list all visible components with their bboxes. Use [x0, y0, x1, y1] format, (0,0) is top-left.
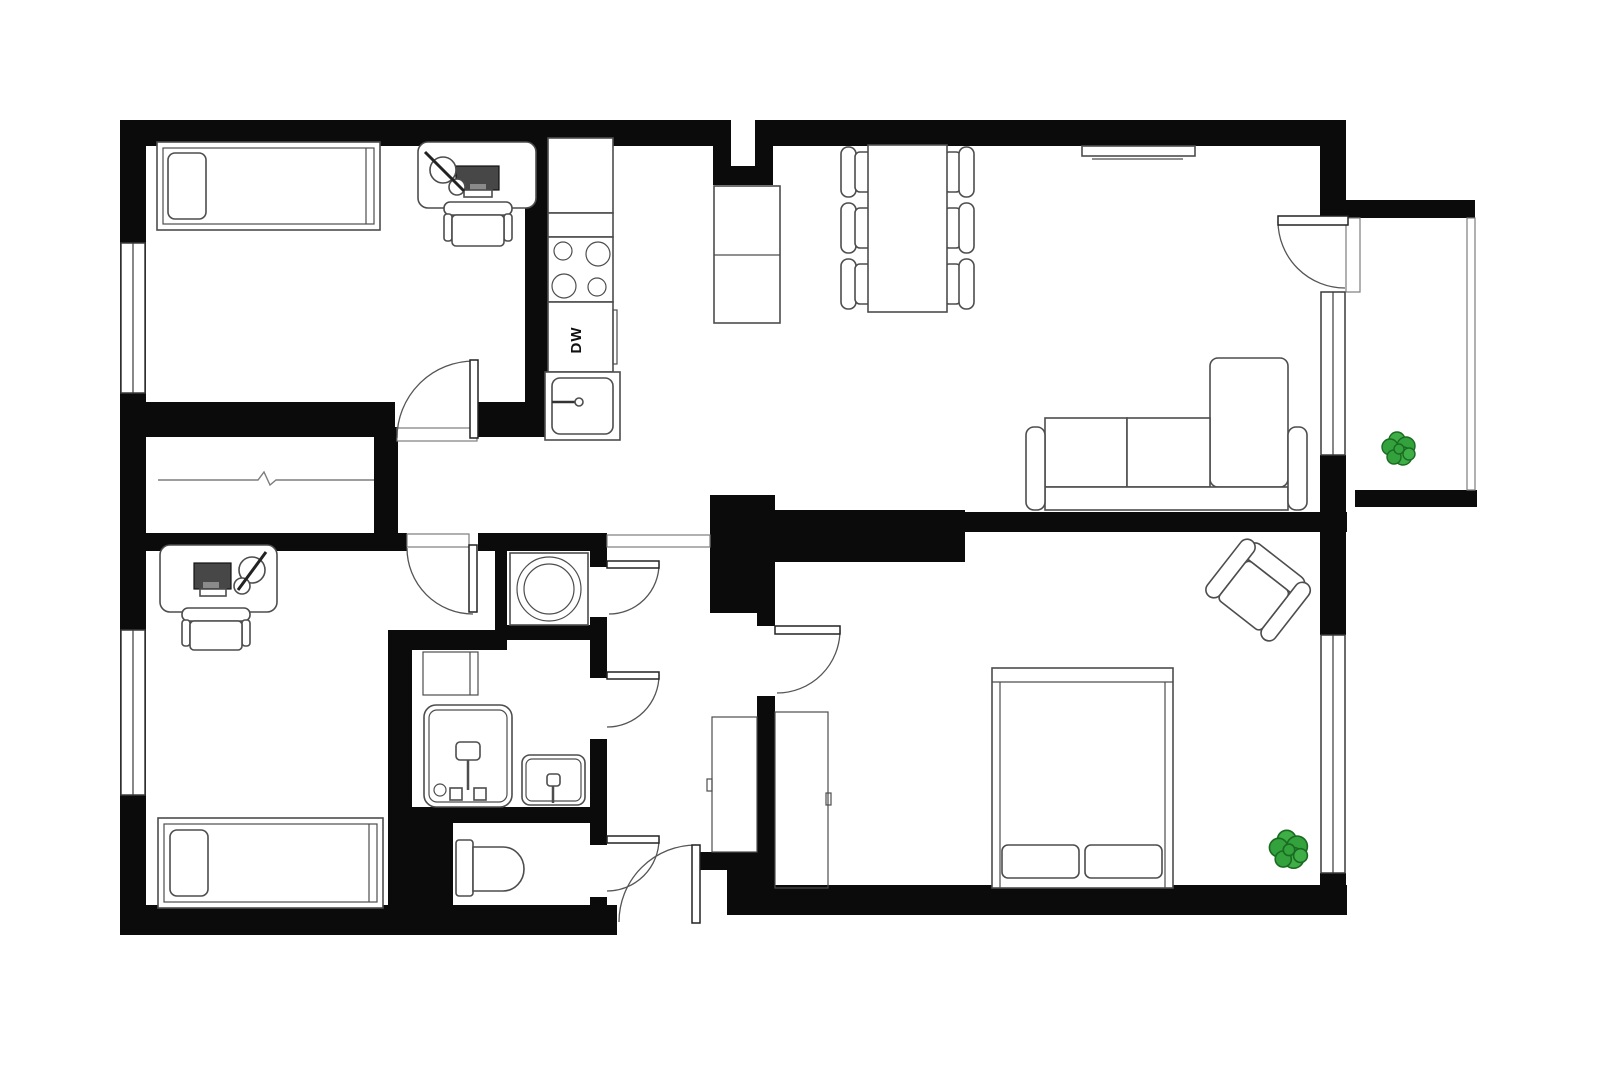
door-bedroom1: [397, 360, 478, 438]
wall-hall-pier: [374, 427, 398, 545]
door-laundry-closet: [607, 561, 659, 614]
single-bed-2: [158, 818, 383, 908]
wall-livingroom-east-upper: [1320, 120, 1346, 218]
threshold-bedroom1-door: [397, 428, 477, 441]
chair-right-2: [944, 203, 974, 253]
wall-livingroom-south: [965, 512, 1347, 532]
wall-wc-west: [412, 818, 453, 933]
tv: [1082, 146, 1195, 159]
wall-central-block: [710, 495, 775, 613]
shower-head: [456, 742, 480, 760]
window-livingroom: [1321, 292, 1345, 455]
sofa-back: [1045, 487, 1288, 510]
toilet-bowl: [473, 847, 524, 891]
closet-handle: [707, 779, 712, 791]
pillow: [170, 830, 208, 896]
pillow-left: [1002, 845, 1079, 878]
walls: [120, 120, 1477, 935]
door-bedroom2: [407, 545, 477, 614]
floor-plan-page: DW: [0, 0, 1599, 1066]
plant-balcony: [1382, 432, 1415, 465]
sofa-seat-2: [1127, 418, 1210, 487]
wall-closet-west: [495, 551, 507, 628]
wall-bedroom3-east-upper: [1320, 533, 1346, 635]
door-balcony: [1278, 216, 1348, 288]
wall-closet-north: [478, 533, 607, 551]
sofa-armrest-left: [1026, 427, 1045, 510]
wall-bathroom-west: [388, 630, 412, 933]
wall-bedroom1-south-west: [120, 402, 395, 437]
room-bathroom: [423, 652, 585, 807]
balcony-door-jamb: [1346, 218, 1360, 292]
pillow: [168, 153, 206, 219]
office-chair-1: [444, 202, 512, 246]
wall-bedroom3-north-thick: [775, 510, 965, 562]
chair-right-3: [944, 259, 974, 309]
wall-bathroom-north: [388, 630, 507, 650]
dining-table: [868, 145, 947, 312]
faucet: [575, 398, 583, 406]
wall-bedroom3-south: [727, 885, 1347, 915]
bathroom-cabinet: [423, 652, 478, 695]
armchair: [1203, 534, 1315, 644]
door-bedroom3: [775, 626, 840, 693]
window-bedroom1: [121, 243, 145, 393]
double-bed: [992, 668, 1173, 888]
desk-1: [418, 142, 536, 208]
cooktop: [548, 237, 613, 302]
kitchen-counter: [548, 138, 613, 213]
window-bedroom2: [121, 630, 145, 795]
wall-corridor-c: [590, 739, 607, 845]
room-wc: [456, 840, 524, 896]
duct-notch: [731, 120, 755, 166]
wall-balcony-top: [1343, 200, 1475, 218]
hallway-storage: [707, 717, 757, 852]
hall-closet: [707, 717, 757, 852]
shower: [424, 705, 512, 807]
door-wc: [607, 836, 659, 891]
door-entrance: [619, 845, 700, 923]
desk-2: [160, 545, 277, 612]
sofa-chaise: [1210, 358, 1288, 487]
room-laundry-closet: [510, 553, 588, 625]
wall-corridor-d: [590, 897, 607, 935]
door-bathroom: [607, 672, 659, 727]
single-bed-1: [157, 142, 380, 230]
floor-plan-drawing: DW: [0, 0, 1599, 1066]
chair-right-1: [944, 147, 974, 197]
plant-bedroom-right: [1269, 830, 1307, 868]
wall-bedroom1-south-east: [477, 402, 548, 437]
dishwasher: DW: [548, 302, 617, 372]
window-bedroom3: [1321, 635, 1345, 873]
wall-bedroom3-east-lower: [1320, 873, 1346, 915]
room-bedroom-top-left: [157, 142, 536, 246]
hall-opening-line: [158, 472, 374, 485]
passage-markers: [158, 428, 710, 547]
room-living-dining: [841, 145, 1307, 510]
dishwasher-label: DW: [568, 327, 585, 354]
bathroom-sink: [522, 755, 585, 805]
wall-bedroom3-west: [757, 696, 775, 915]
wall-corridor-b: [590, 617, 607, 678]
wall-bathroom-wc-divider: [412, 807, 607, 823]
sofa-armrest-right: [1288, 427, 1307, 510]
office-chair-2: [182, 608, 250, 650]
wardrobe: [775, 712, 831, 888]
island-cabinets: [714, 186, 780, 323]
sink-faucet: [547, 774, 560, 786]
wall-entry-jog-horizontal: [700, 852, 757, 870]
toilet: [456, 840, 524, 896]
kitchen-sink: [545, 372, 620, 440]
room-bedroom-right: [775, 534, 1315, 888]
wall-bedroom3-west-stub: [757, 613, 775, 626]
pillow-right: [1085, 845, 1162, 878]
monitor-stand-1: [464, 190, 492, 197]
wall-livingroom-east-lower: [1320, 455, 1346, 533]
wall-balcony-bottom: [1355, 490, 1477, 507]
threshold-hall-passage: [607, 535, 710, 547]
kitchen-counter-band: [548, 213, 613, 237]
threshold-bedroom2-door: [407, 534, 469, 547]
toilet-tank: [456, 840, 473, 896]
room-bedroom-bottom-left: [158, 545, 383, 908]
washing-machine: [510, 553, 588, 625]
sofa: [1026, 358, 1307, 510]
wall-corridor-a: [590, 551, 607, 567]
sofa-seat-1: [1045, 418, 1127, 487]
balcony-railing: [1467, 218, 1475, 490]
monitor-stand-2: [200, 589, 226, 596]
wall-bottom-left: [140, 905, 617, 935]
